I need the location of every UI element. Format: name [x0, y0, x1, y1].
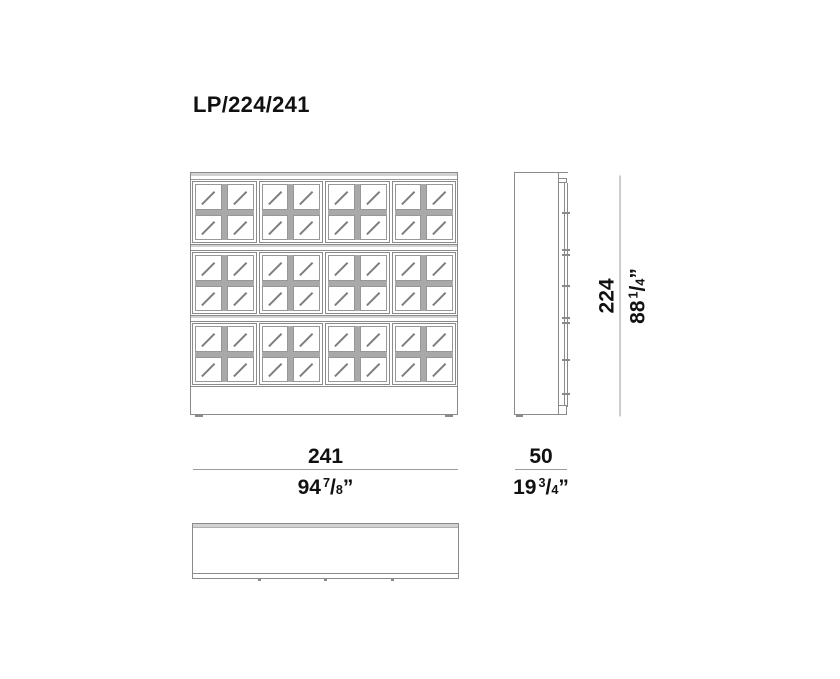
front-view	[190, 172, 458, 415]
glass-pane	[293, 184, 320, 210]
glass-diagonal-line	[433, 292, 447, 306]
door-module	[392, 181, 457, 243]
glass-diagonal-line	[233, 363, 247, 377]
glass-pane	[328, 184, 355, 210]
glass-diagonal-line	[433, 332, 447, 346]
dimension-height-imperial: 881/4”	[623, 268, 653, 324]
glass-pane	[328, 215, 355, 241]
glass-pane	[293, 326, 320, 352]
glass-diagonal-line	[300, 363, 314, 377]
dimension-height-line	[620, 175, 621, 416]
glass-pane	[293, 215, 320, 241]
dimension-height: 224 881/4”	[597, 175, 653, 416]
glass-diagonal-line	[300, 332, 314, 346]
side-door-tick	[562, 212, 570, 214]
glass-pane	[262, 286, 289, 312]
glass-diagonal-line	[401, 292, 415, 306]
glass-diagonal-line	[433, 363, 447, 377]
side-door-tick	[562, 359, 570, 361]
glass-pane	[360, 215, 387, 241]
glass-pane	[395, 215, 422, 241]
glass-diagonal-line	[401, 332, 415, 346]
glass-pane	[395, 286, 422, 312]
glass-pane	[395, 326, 422, 352]
door-module	[259, 323, 324, 385]
pane-grid	[395, 326, 454, 382]
glass-diagonal-line	[366, 363, 380, 377]
pane-grid	[195, 184, 254, 240]
glass-pane	[293, 255, 320, 281]
door-module	[325, 252, 390, 314]
plan-front-edge-line	[193, 573, 458, 574]
glass-pane	[426, 215, 453, 241]
glass-diagonal-line	[366, 221, 380, 235]
glass-pane	[328, 255, 355, 281]
plan-back-edge	[193, 524, 458, 528]
dimension-width-imperial: 947/8”	[298, 472, 354, 502]
dimension-height-metric: 224	[597, 278, 618, 313]
glass-diagonal-line	[268, 363, 282, 377]
pane-grid	[328, 184, 387, 240]
glass-diagonal-line	[300, 292, 314, 306]
glass-pane	[227, 215, 254, 241]
glass-pane	[227, 357, 254, 383]
side-top-edge	[558, 172, 568, 173]
pane-grid	[195, 255, 254, 311]
glass-diagonal-line	[201, 332, 215, 346]
dimension-depth-metric: 50	[529, 446, 552, 467]
glass-pane	[395, 184, 422, 210]
glass-diagonal-line	[300, 221, 314, 235]
door-row	[191, 251, 457, 315]
shelf-separator	[191, 315, 457, 322]
pane-grid	[328, 255, 387, 311]
pane-grid	[262, 326, 321, 382]
glass-diagonal-line	[366, 261, 380, 275]
side-body	[514, 172, 559, 415]
glass-diagonal-line	[201, 363, 215, 377]
door-module	[325, 181, 390, 243]
glass-pane	[195, 286, 222, 312]
glass-diagonal-line	[233, 292, 247, 306]
door-module	[392, 323, 457, 385]
glass-pane	[262, 326, 289, 352]
glass-pane	[426, 357, 453, 383]
dimension-width: 241 947/8”	[193, 446, 458, 502]
glass-pane	[426, 255, 453, 281]
glass-pane	[328, 286, 355, 312]
glass-diagonal-line	[233, 261, 247, 275]
glass-diagonal-line	[300, 190, 314, 204]
glass-diagonal-line	[201, 261, 215, 275]
glass-pane	[195, 255, 222, 281]
glass-pane	[227, 326, 254, 352]
glass-diagonal-line	[233, 332, 247, 346]
glass-pane	[195, 357, 222, 383]
cabinet-top-edge	[191, 173, 457, 180]
side-door-tick	[562, 322, 570, 324]
side-door-tick	[562, 317, 570, 319]
glass-diagonal-line	[201, 190, 215, 204]
glass-diagonal-line	[433, 221, 447, 235]
plan-division-tick	[324, 578, 327, 581]
side-view	[514, 172, 572, 420]
dimension-depth-line	[515, 469, 567, 470]
shelf-separator	[191, 244, 457, 251]
side-door-front-line	[564, 183, 568, 407]
glass-diagonal-line	[268, 190, 282, 204]
glass-diagonal-line	[268, 221, 282, 235]
pane-grid	[328, 326, 387, 382]
pane-grid	[262, 184, 321, 240]
glass-diagonal-line	[334, 190, 348, 204]
glass-diagonal-line	[401, 221, 415, 235]
glass-diagonal-line	[366, 292, 380, 306]
glass-diagonal-line	[268, 261, 282, 275]
glass-pane	[227, 184, 254, 210]
glass-diagonal-line	[366, 332, 380, 346]
glass-diagonal-line	[268, 332, 282, 346]
glass-pane	[360, 357, 387, 383]
door-module	[192, 323, 257, 385]
glass-diagonal-line	[300, 261, 314, 275]
front-view-doors	[191, 180, 457, 386]
glass-diagonal-line	[334, 221, 348, 235]
glass-pane	[395, 255, 422, 281]
glass-pane	[360, 255, 387, 281]
glass-diagonal-line	[334, 261, 348, 275]
plan-division-tick	[391, 578, 394, 581]
glass-diagonal-line	[334, 292, 348, 306]
glass-pane	[262, 255, 289, 281]
dimension-width-metric: 241	[308, 446, 343, 467]
glass-diagonal-line	[433, 190, 447, 204]
pane-grid	[395, 184, 454, 240]
glass-diagonal-line	[233, 190, 247, 204]
glass-diagonal-line	[201, 292, 215, 306]
side-door-tick	[562, 254, 570, 256]
glass-diagonal-line	[401, 261, 415, 275]
plan-view	[192, 523, 459, 579]
glass-diagonal-line	[334, 332, 348, 346]
glass-pane	[328, 357, 355, 383]
side-foot	[558, 405, 567, 415]
plinth	[191, 386, 457, 414]
glass-pane	[293, 357, 320, 383]
glass-pane	[426, 184, 453, 210]
foot-right	[445, 415, 453, 417]
glass-diagonal-line	[401, 363, 415, 377]
door-row	[191, 322, 457, 386]
glass-pane	[227, 286, 254, 312]
door-module	[192, 252, 257, 314]
door-module	[259, 181, 324, 243]
glass-diagonal-line	[433, 261, 447, 275]
foot-left	[195, 415, 203, 417]
glass-pane	[293, 286, 320, 312]
glass-pane	[195, 326, 222, 352]
dimension-width-line	[193, 469, 458, 470]
glass-diagonal-line	[334, 363, 348, 377]
side-door-tick	[562, 285, 570, 287]
glass-pane	[195, 215, 222, 241]
glass-diagonal-line	[233, 221, 247, 235]
glass-pane	[227, 255, 254, 281]
glass-pane	[426, 326, 453, 352]
product-code-title: LP/224/241	[193, 92, 310, 118]
glass-pane	[262, 184, 289, 210]
side-foot-back	[516, 415, 523, 417]
door-module	[392, 252, 457, 314]
glass-pane	[328, 326, 355, 352]
plan-division-tick	[258, 578, 261, 581]
glass-pane	[262, 215, 289, 241]
door-module	[325, 323, 390, 385]
glass-pane	[426, 286, 453, 312]
glass-pane	[395, 357, 422, 383]
pane-grid	[262, 255, 321, 311]
dimension-depth: 50 193/4”	[515, 446, 567, 502]
glass-pane	[360, 326, 387, 352]
pane-grid	[195, 326, 254, 382]
side-door-tick	[562, 249, 570, 251]
glass-pane	[262, 357, 289, 383]
glass-pane	[360, 184, 387, 210]
glass-diagonal-line	[201, 221, 215, 235]
glass-diagonal-line	[366, 190, 380, 204]
pane-grid	[395, 255, 454, 311]
glass-diagonal-line	[268, 292, 282, 306]
door-row	[191, 180, 457, 244]
door-module	[259, 252, 324, 314]
glass-pane	[360, 286, 387, 312]
side-door-tick	[562, 393, 570, 395]
dimension-depth-imperial: 193/4”	[513, 472, 569, 502]
glass-pane	[195, 184, 222, 210]
door-module	[192, 181, 257, 243]
glass-diagonal-line	[401, 190, 415, 204]
